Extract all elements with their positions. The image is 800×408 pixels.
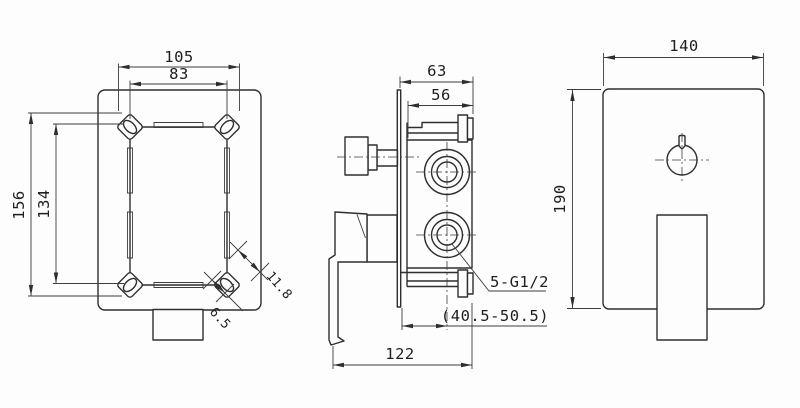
dim-arrow: [402, 324, 413, 328]
thread-label: 5-G1/2: [490, 273, 549, 291]
dim-corner-tab: 11.8: [263, 269, 295, 302]
dim-length-total: 122: [385, 345, 415, 363]
dim-arrow: [216, 82, 227, 86]
port-cap-bottom: [468, 273, 474, 294]
dim-width-outer: 105: [164, 48, 194, 66]
dim-arrow: [462, 80, 473, 84]
dim-arrow: [29, 285, 33, 296]
clip-slots: [128, 123, 230, 288]
lever-adapter: [367, 215, 397, 262]
front-view: 105 83 156 134 11.8 6.5: [10, 48, 295, 340]
dim-arrow: [752, 55, 763, 59]
front-dim-arrows: [29, 65, 260, 296]
rear-view: 140 190: [551, 37, 764, 340]
lever-handle-side: [329, 212, 367, 345]
side-view: 63 56 5-G1/2 (40.5-50.5) 122: [329, 62, 549, 369]
dim-wall-range: (40.5-50.5): [441, 307, 549, 325]
diverter-stem-side: [377, 150, 398, 166]
dim-height-inner: 134: [35, 189, 53, 219]
dim-arrow: [119, 65, 130, 69]
dim-height-outer: 156: [10, 190, 28, 220]
port-flange-bottom: [458, 270, 468, 297]
front-inner-recess: [130, 127, 227, 285]
lever-handle-rear: [657, 215, 707, 340]
dim-arrow: [570, 297, 574, 308]
dim-plate-width: 140: [669, 37, 699, 55]
mixer-valve-drawing: 105 83 156 134 11.8 6.5: [0, 0, 800, 408]
dim-arrow: [54, 124, 58, 135]
dim-arrow: [29, 113, 33, 124]
dim-arrow: [604, 55, 615, 59]
dim-arrow: [333, 363, 344, 367]
port-cap-top: [468, 118, 474, 139]
inlet-port-top: [407, 123, 459, 141]
dim-arrow: [130, 82, 141, 86]
dim-plate-height: 190: [551, 184, 569, 214]
diverter-flange-side: [368, 145, 377, 170]
mounting-tab: [117, 272, 144, 299]
dim-arrow: [54, 273, 58, 284]
dim-arrow: [229, 65, 240, 69]
dim-depth-outer: 63: [427, 62, 447, 80]
dim-width-inner: 83: [169, 65, 189, 83]
technical-drawing-canvas: 105 83 156 134 11.8 6.5: [0, 0, 800, 408]
dim-arrow: [461, 363, 472, 367]
dim-arrow: [400, 80, 411, 84]
dim-arrow: [570, 90, 574, 101]
dim-tab-slot: 6.5: [206, 305, 233, 332]
side-wall-plate: [397, 90, 400, 307]
dim-depth-body: 56: [431, 86, 451, 104]
port-flange-top: [458, 115, 468, 142]
diverter-knob-side: [345, 137, 368, 175]
dim-arrow: [408, 103, 419, 107]
centerline: [655, 133, 709, 183]
outlet-port-bottom: [401, 268, 458, 287]
dim-arrow: [462, 103, 473, 107]
handle-base-front: [153, 310, 203, 341]
front-dim-lines: [28, 64, 269, 312]
